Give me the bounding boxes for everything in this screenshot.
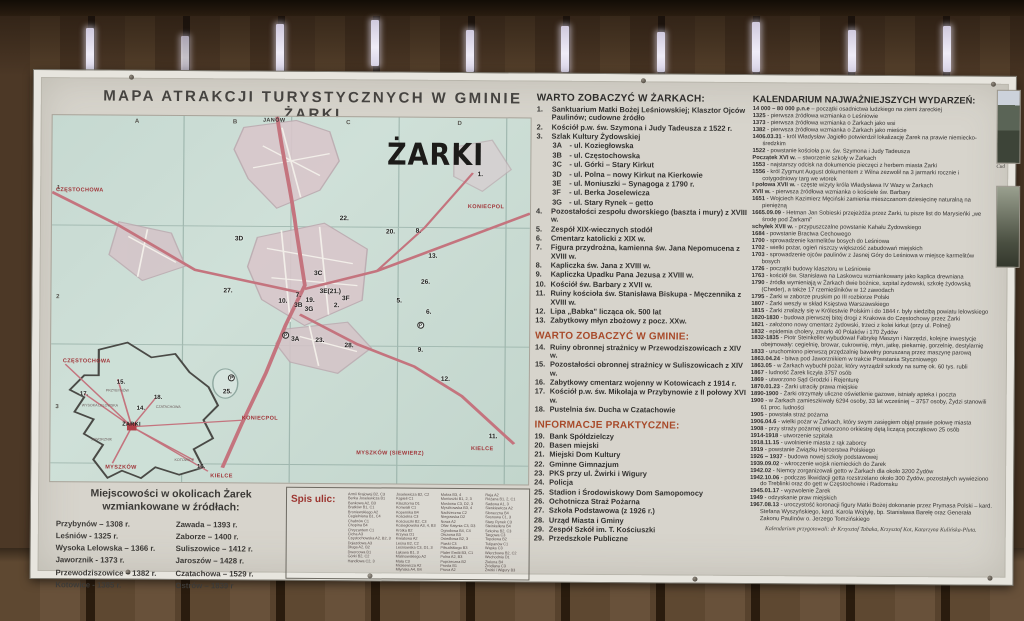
grid-letter: C xyxy=(346,120,350,126)
entry-date: 1890-1900 xyxy=(751,391,779,397)
info-number: 28. xyxy=(534,516,549,524)
direction-label: MYSZKÓW xyxy=(105,464,137,470)
entry-date: 1914-1918 xyxy=(750,433,778,439)
poi-marker: 3A xyxy=(291,335,299,342)
inset-village-label: KOTOWICE xyxy=(175,458,195,462)
village-entry: Przybynów – 1308 r. xyxy=(56,518,166,531)
sight-number: 16. xyxy=(535,379,550,387)
town-map: ŻARKI ŻARKI ABCD 123 JANÓWCZĘSTOCHOWAKON… xyxy=(50,115,531,484)
sight-item: 3C - ul. Górki – Stary Kirkut xyxy=(536,161,748,171)
sight-number: 3E xyxy=(552,179,569,187)
sight-number: 14. xyxy=(535,343,550,360)
village-entry: Przewodziszowice – 1382 r. xyxy=(55,567,165,580)
entry-date: 1870.01.23 xyxy=(751,384,780,390)
sight-text: Pozostałości obronnej strażnicy w Sulisz… xyxy=(550,361,747,379)
direction-label: KIELCE xyxy=(471,446,494,452)
sight-number: 18. xyxy=(535,406,550,414)
sight-text: Ruiny obronnej strażnicy w Przewodziszow… xyxy=(550,343,747,361)
street-entry: Prusa A2 xyxy=(440,568,480,573)
kalendarium-entry: 1967.08.13 - uroczystość koronacji figur… xyxy=(750,502,992,525)
screw xyxy=(129,75,134,80)
entry-text: - utworzono Sąd Grodzki i Rejenturę xyxy=(765,377,858,384)
grid-letter: A xyxy=(135,119,139,125)
poi-marker-inset: 14. xyxy=(137,406,145,412)
sights-gmina-section: WARTO ZOBACZYĆ W GMINIE: 14. Ruiny obron… xyxy=(535,330,748,415)
sight-item: 18. Pustelnia św. Ducha w Czatachowie xyxy=(535,406,747,416)
entry-date: 14 000 – 80 000 p.n.e xyxy=(753,106,810,112)
sight-item: 17. Kościół p.w. św. Mikołaja w Przybyno… xyxy=(535,388,747,406)
sights-town-header: WARTO ZOBACZYĆ W ŻARKACH: xyxy=(537,93,749,105)
info-number: 29. xyxy=(534,535,549,543)
entry-date: 1833 xyxy=(751,349,764,355)
entry-text: - początki budowy klasztoru w Leśniowie xyxy=(766,266,870,273)
grid-row-number: 3 xyxy=(55,404,58,410)
poi-marker: 11. xyxy=(489,434,498,441)
entry-date: 1406.03.31 xyxy=(753,134,782,140)
sight-number: 17. xyxy=(535,388,550,405)
entry-text: - źródła wymieniają w Żarkach dwie bożni… xyxy=(761,280,970,294)
entry-text: - Wojciech Kazimierz Męciński zamienia m… xyxy=(762,197,971,210)
entry-text: - utworzenie szpitala xyxy=(780,433,833,439)
info-text: PKS przy ul. Żwirki i Wigury xyxy=(549,470,746,480)
direction-label: KIELCE xyxy=(210,473,233,479)
sight-text: Zabytkowy młyn zbożowy z pocz. XXw. xyxy=(550,317,747,327)
direction-label: MYSZKÓW (SIEWIERZ) xyxy=(356,450,424,456)
entry-date: 1821 xyxy=(751,322,764,328)
plank-gap-light xyxy=(371,20,379,66)
entry-text: - ludność Żarek liczyła 3757 osób xyxy=(765,370,851,377)
sight-number: 1. xyxy=(537,106,552,123)
sight-number: 3D xyxy=(552,170,569,178)
entry-date: 1700 xyxy=(752,238,765,244)
poi-marker: 13. xyxy=(428,253,437,260)
direction-label: CZĘSTOCHOWA xyxy=(56,187,104,193)
street-index-col4: Reja A2Różana B1, 2, C1Sadowa A1, 3Sienk… xyxy=(485,493,525,573)
info-text: Przedszkole Publiczne xyxy=(549,535,746,545)
entry-date: 1939.09.02 xyxy=(750,461,779,467)
entry-date: 1373 xyxy=(753,120,766,126)
entry-date: 1908 xyxy=(750,426,763,432)
village-entry: Czatachowa – 1529 r. xyxy=(175,568,285,581)
entry-text: - przypuszczalne powstanie Kahału Żydows… xyxy=(795,225,921,232)
direction-label: KONIECPOL xyxy=(242,415,278,421)
sight-item: 15. Pozostałości obronnej strażnicy w Su… xyxy=(535,361,747,379)
village-entry: Ostrów – 1839 r xyxy=(175,580,285,593)
photo-caption: Cud xyxy=(996,164,1020,170)
grid-letter: D xyxy=(457,121,461,127)
poi-marker: 25. xyxy=(223,388,232,395)
info-item: 29. Przedszkole Publiczne xyxy=(534,535,746,545)
entry-date: 1926 – 1937 xyxy=(750,454,782,460)
poi-marker: 22. xyxy=(340,215,349,222)
inset-village-label: PRZYBYNÓW xyxy=(106,389,129,393)
entry-date: 1703 xyxy=(752,252,765,258)
entry-date: 1325 xyxy=(753,113,766,119)
villages-header: Miejscowości w okolicach Żarek wzmiankow… xyxy=(52,487,290,515)
info-number: 21. xyxy=(534,451,549,459)
photo-strip: Cud xyxy=(996,90,1021,268)
info-number: 26. xyxy=(534,498,549,506)
entry-date: 1918.11.15 xyxy=(750,440,779,446)
entry-date: 1763 xyxy=(752,273,765,279)
direction-label: JANÓW xyxy=(263,118,286,124)
sights-town-section: WARTO ZOBACZYĆ W ŻARKACH: 1. Sanktuarium… xyxy=(535,93,749,327)
inset-village-label: CZATACHOWA xyxy=(156,405,181,409)
sight-item: 11. Ruiny kościoła św. Stanisława Biskup… xyxy=(535,290,747,308)
wood-top-shade xyxy=(0,16,1024,76)
sight-number: 8. xyxy=(536,262,551,270)
village-entry: Leśniów - 1325 r. xyxy=(56,530,166,543)
sight-text: Sanktuarium Matki Bożej Leśniowskiej; Kl… xyxy=(552,106,749,124)
entry-date: 1553 xyxy=(752,162,765,168)
entry-text: - pierwsza źródłowa wzmianka o Żarkach j… xyxy=(767,127,907,134)
practical-info-list: 19. Bank Spółdzielczy 20. Basen miejski … xyxy=(534,432,747,545)
entry-date: XVII w. xyxy=(752,189,771,195)
poi-marker: 3F xyxy=(342,295,350,302)
entry-text: - powstanie kościoła p.w. św. Szymona i … xyxy=(767,148,910,155)
plank-gap-light xyxy=(276,24,284,72)
entry-date: 1905 xyxy=(751,412,764,418)
entry-date: 1702 xyxy=(752,245,765,251)
entry-text: – stworzenie szkoły w Żarkach xyxy=(798,155,877,162)
plank-gap-light xyxy=(752,22,760,72)
entry-text: - wkroczenie wojsk niemieckich do Żarek xyxy=(781,461,886,468)
sight-number: 3G xyxy=(552,198,569,206)
sight-item: 3. Szlak Kultury Żydowskiej xyxy=(537,133,749,143)
poi-marker: 3G xyxy=(305,306,314,313)
sight-text: Kościół p.w. św. Mikołaja w Przybynowie … xyxy=(550,388,747,406)
sight-text: Figura przydrożna, kamienna św. Jana Nep… xyxy=(551,244,748,262)
info-number: 22. xyxy=(534,460,549,468)
entry-text: - częste wizyty króla Władysława IV Wazy… xyxy=(797,183,933,190)
entry-date: 1906.04.6 xyxy=(751,419,777,425)
poi-marker: 20. xyxy=(386,229,395,236)
entry-text: - Niemcy zorganizowali getto w Żarkach d… xyxy=(773,468,934,475)
sight-item: 14. Ruiny obronnej strażnicy w Przewodzi… xyxy=(535,343,747,361)
entry-text: - wyzwolenie Żarek xyxy=(781,489,831,495)
entry-text: - uwolnienie miasta z rąk zaborcy xyxy=(781,440,867,447)
sight-number: 11. xyxy=(535,290,550,307)
entry-text: - pierwsza źródłowa wzmianka o Żarkach j… xyxy=(767,120,895,127)
entry-text: - powstała straż pożarna xyxy=(765,412,828,418)
poi-marker: 3B xyxy=(294,302,302,309)
sight-number: 6. xyxy=(536,235,551,243)
plank-gap-light xyxy=(657,32,665,72)
villages-box: Miejscowości w okolicach Żarek wzmiankow… xyxy=(51,487,290,592)
sight-item: 3F - ul. Berka Joselewicza xyxy=(536,189,748,199)
sight-number: 3. xyxy=(537,133,552,141)
inset-town-name: ŻARKI xyxy=(122,421,141,427)
plank-gap-light xyxy=(943,26,951,72)
kalendarium-column: KALENDARIUM NAJWAŻNIEJSZYCH WYDARZEŃ: 14… xyxy=(750,94,995,534)
entry-text: - podczas likwidacji getta rozstrzelano … xyxy=(760,475,988,489)
sights-column: WARTO ZOBACZYĆ W ŻARKACH: 1. Sanktuarium… xyxy=(534,93,749,550)
sight-number: 10. xyxy=(535,280,550,288)
plank-gap-light xyxy=(848,30,856,72)
poi-marker: 8. xyxy=(416,228,421,235)
direction-label: CZĘSTOCHOWA xyxy=(63,358,111,364)
parking-icon: P xyxy=(417,322,424,329)
wood-top-rail xyxy=(0,0,1024,16)
village-entry: Zaborze – 1400 r. xyxy=(176,531,286,544)
screw xyxy=(692,577,697,582)
entry-text: - najstarszy odcisk na dokumencie pieczę… xyxy=(767,162,937,169)
entry-date: 1967.08.13 xyxy=(750,502,779,508)
sight-number: 2. xyxy=(537,123,552,131)
street-index-col3: Mokra B3, 4Moniuszki B1, 2, 3Mostowa C3,… xyxy=(440,493,480,573)
screw xyxy=(641,78,646,83)
poi-marker: 23. xyxy=(315,337,324,344)
street-index-header: Spis ulic: xyxy=(291,494,336,506)
entry-date: 1900 xyxy=(751,398,764,404)
sight-number: 9. xyxy=(536,271,551,279)
sight-number: 3A xyxy=(552,142,569,150)
sight-text: Pozostałości zespołu dworskiego (baszta … xyxy=(551,208,748,226)
entry-date: 1815 xyxy=(751,308,764,314)
sight-text: Ruiny kościoła św. Stanisława Biskupa - … xyxy=(550,290,747,308)
village-entry: Kotowice - 1385 r. xyxy=(55,579,165,592)
entry-date: 1869 xyxy=(751,377,764,383)
plank-gap-light xyxy=(561,26,569,72)
entry-text: - pierwsza źródłowa wzmianka o kościele … xyxy=(772,190,910,197)
poi-marker: 6. xyxy=(426,309,431,316)
entry-text: - budowa nowej szkoły podstawowej xyxy=(784,454,877,461)
poi-marker: 26. xyxy=(421,278,430,285)
entry-text: - epidemia cholery, zmarło 40 Polaków i … xyxy=(766,329,898,336)
poi-marker: 27. xyxy=(224,287,233,294)
village-entry: Jaworznik - 1373 r. xyxy=(56,555,166,568)
poi-marker: 3D xyxy=(235,236,243,243)
entry-text: - odzyskanie praw miejskich xyxy=(765,495,837,502)
entry-text: - w Żarkach zamieszkiwały 6294 osoby, 33… xyxy=(761,398,987,411)
poi-marker-inset: 16. xyxy=(197,464,205,470)
poi-marker: 9. xyxy=(418,347,423,354)
entry-date: 1795 xyxy=(751,294,764,300)
info-number: 19. xyxy=(534,432,549,440)
kalendarium-list: 14 000 – 80 000 p.n.e – początki osadnic… xyxy=(750,106,995,525)
village-entry: Jaroszów – 1428 r. xyxy=(176,555,286,568)
entry-text: - sprowadzenie ojców paulinów z Jasnej G… xyxy=(762,252,974,265)
poi-marker-inset: 18. xyxy=(154,395,162,401)
entry-text: - Żarki w zaborze pruskim po III rozbior… xyxy=(766,294,889,301)
entry-date: 1665.09.09 xyxy=(752,210,781,216)
information-board: MAPA ATRAKCJI TURYSTYCZNYCH W GMINIE ŻAR… xyxy=(30,70,1016,585)
sight-number: 4. xyxy=(536,207,551,224)
street-index-col0: Spis ulic: xyxy=(291,506,343,572)
entry-date: 1863.04.24 xyxy=(751,356,780,362)
entry-text: - Hetman Jan Sobieski przejeżdża przez Ż… xyxy=(762,211,981,224)
poi-marker: 19. xyxy=(306,297,315,304)
poi-marker: 10. xyxy=(278,298,287,305)
info-number: 24. xyxy=(534,479,549,487)
practical-info-header: INFORMACJE PRAKTYCZNE: xyxy=(534,419,746,431)
entry-date: 1919 xyxy=(750,447,763,453)
practical-info-section: INFORMACJE PRAKTYCZNE: 19. Bank Spółdzie… xyxy=(534,419,747,545)
screw xyxy=(991,82,996,87)
info-number: 25. xyxy=(534,488,549,496)
sight-number: 12. xyxy=(535,307,550,315)
entry-date: 1522 xyxy=(752,148,765,154)
entry-date: 1820-1830 xyxy=(751,315,779,321)
map-town-name: ŻARKI xyxy=(387,138,484,173)
plank-gap-light xyxy=(466,30,474,72)
sight-number: 3B xyxy=(552,151,569,159)
entry-date: 1949 xyxy=(750,495,763,501)
sight-number: 15. xyxy=(535,361,550,378)
village-entry: Wysoka Lelowska – 1366 r. xyxy=(56,543,166,556)
entry-text: – początki osadnictwa ludzkiego na ziemi… xyxy=(811,106,942,113)
villages-col2: Zawada – 1393 r.Zaborze – 1400 r.Suliszo… xyxy=(175,519,286,592)
screw xyxy=(987,576,992,581)
poi-marker-inset: 17. xyxy=(80,391,88,397)
entry-text: - powstanie Związku Harcerstwa Polskiego xyxy=(765,447,875,454)
grid-row-number: 2 xyxy=(56,294,59,300)
kalendarium-credit: Kalendarium przygotowali: dr Krzysztof T… xyxy=(750,526,992,534)
sight-text: Pustelnia św. Ducha w Czatachowie xyxy=(550,406,747,416)
entry-date: 1790 xyxy=(752,280,765,286)
entry-date: 1832-1835 xyxy=(751,335,779,341)
sight-item: 4. Pozostałości zespołu dworskiego (basz… xyxy=(536,207,748,225)
info-number: 27. xyxy=(534,507,549,515)
poi-marker: 3C xyxy=(314,270,322,277)
villages-col1: Przybynów – 1308 r.Leśniów - 1325 r.Wyso… xyxy=(55,518,166,591)
poi-marker: 3E(21.) xyxy=(320,288,341,295)
entry-text: - sprowadzenie karmelitów bosych do Leśn… xyxy=(766,238,889,245)
street-index-col1: Armii Krajowej B2, C3Berka Joselewicza B… xyxy=(348,492,392,572)
sights-gmina-list: 14. Ruiny obronnej strażnicy w Przewodzi… xyxy=(535,343,747,415)
sight-item: 3A - ul. Koziegłowska xyxy=(536,142,748,152)
plank-gap-light xyxy=(181,36,189,72)
entry-text: - powstanie Bractwa Cechowego xyxy=(766,231,850,238)
entry-date: 1867 xyxy=(751,370,764,376)
poi-marker: 7. xyxy=(296,292,301,299)
street-entry: Handlowa C2, 3 xyxy=(348,559,391,564)
entry-date: I połowa XVII w. xyxy=(752,183,795,189)
street-entry: Młyńska A4, B4 xyxy=(396,568,436,573)
sight-number: 3F xyxy=(552,189,569,197)
sight-item: 1. Sanktuarium Matki Bożej Leśniowskiej;… xyxy=(537,106,749,124)
sight-number: 3C xyxy=(552,161,569,169)
photo-thumbnail xyxy=(996,186,1021,268)
entry-date: 1807 xyxy=(751,301,764,307)
plank-gap-light xyxy=(86,28,94,72)
entry-date: 1651 xyxy=(752,196,765,202)
sight-number: 7. xyxy=(536,244,551,261)
entry-date: 1942.10.06 xyxy=(750,475,779,481)
direction-label: KONIECPOL xyxy=(468,204,504,210)
photo-thumbnail xyxy=(996,90,1021,164)
sight-number: 13. xyxy=(535,317,550,325)
entry-date: 1832 xyxy=(751,329,764,335)
poi-marker: 5. xyxy=(396,298,401,305)
entry-date: 1684 xyxy=(752,231,765,237)
entry-text: - Piotr Steinkeller wybudował Fabrykę Ma… xyxy=(761,336,983,350)
entry-date: 1382 xyxy=(753,127,766,133)
entry-date: 1556 xyxy=(752,169,765,175)
inset-village-label: WYSOKA LELOWSKA xyxy=(82,404,118,408)
entry-date: Początek XVI w. xyxy=(752,155,796,161)
kalendarium-header: KALENDARIUM NAJWAŻNIEJSZYCH WYDARZEŃ: xyxy=(753,94,995,106)
entry-date: schyłek XVII w. xyxy=(752,224,793,230)
poi-marker: 28. xyxy=(345,343,354,350)
street-index-col2: Joselewicza B2, C2Kąpieli C1Klasztorna D… xyxy=(396,493,436,573)
village-entry: Suliszowice – 1412 r. xyxy=(176,543,286,556)
entry-date: 1942.02 xyxy=(750,468,771,474)
entry-date: 1726 xyxy=(752,266,765,272)
village-entry: Zawada – 1393 r. xyxy=(176,519,286,532)
entry-date: 1863.05 xyxy=(751,363,772,369)
entry-text: - król Władysław Jagiełło potwierdził lo… xyxy=(762,134,976,147)
sight-item: 7. Figura przydrożna, kamienna św. Jana … xyxy=(536,244,748,262)
info-number: 20. xyxy=(534,441,549,449)
poi-marker: 2. xyxy=(334,302,339,309)
inset-village-label: JAWORZNIK xyxy=(91,437,112,441)
sights-gmina-header: WARTO ZOBACZYĆ W GMINIE: xyxy=(535,330,747,342)
entry-text: - król Zygmunt August dokumentem z Wilna… xyxy=(762,169,959,182)
entry-text: - wielki pożar, ogień niszczy większość … xyxy=(766,245,922,252)
entry-text: - Żarki weszły w skład Księstwa Warszaws… xyxy=(766,301,889,308)
sight-number: 5. xyxy=(536,225,551,233)
entry-text: - pierwsza źródłowa wzmianka o Leśniowie xyxy=(767,113,878,120)
sights-town-list: 1. Sanktuarium Matki Bożej Leśniowskiej;… xyxy=(535,106,749,327)
entry-text: - uroczystość koronacji figury Matki Boż… xyxy=(760,503,992,524)
poi-marker: 12. xyxy=(441,376,450,383)
poi-marker-inset: 15. xyxy=(117,379,125,385)
entry-text: - Żarki utraciły prawa miejskie xyxy=(781,384,857,391)
street-index-box: Spis ulic: Armii Krajowej B2, C3Berka Jo… xyxy=(285,487,530,581)
street-entry: Żwirki i Wigury B3 xyxy=(485,569,525,574)
info-number: 29. xyxy=(534,526,549,534)
info-number: 23. xyxy=(534,469,549,477)
grid-letter: B xyxy=(233,119,237,125)
poi-marker: 1. xyxy=(478,171,483,178)
sight-item: 13. Zabytkowy młyn zbożowy z pocz. XXw. xyxy=(535,317,747,327)
entry-date: 1945.01.17 xyxy=(750,488,779,494)
